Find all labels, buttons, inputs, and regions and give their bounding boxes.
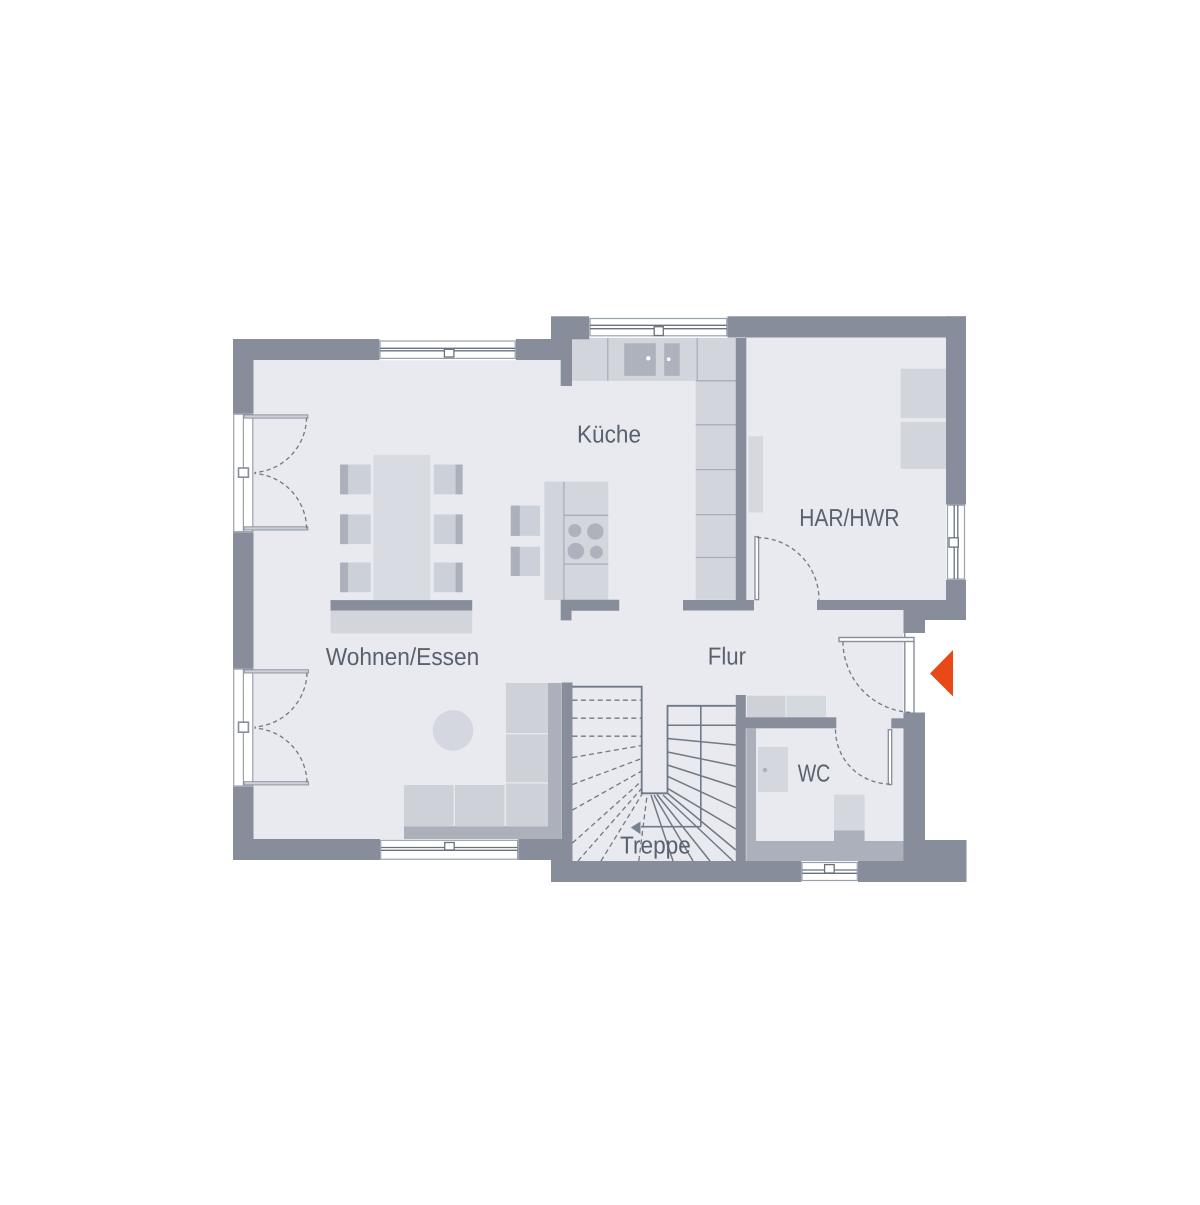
svg-text:HAR/HWR: HAR/HWR: [799, 505, 899, 532]
svg-text:Wohnen/Essen: Wohnen/Essen: [326, 644, 480, 671]
svg-text:Küche: Küche: [577, 422, 641, 449]
svg-text:WC: WC: [798, 761, 831, 788]
svg-text:Flur: Flur: [708, 644, 746, 671]
svg-text:Treppe: Treppe: [620, 832, 691, 859]
